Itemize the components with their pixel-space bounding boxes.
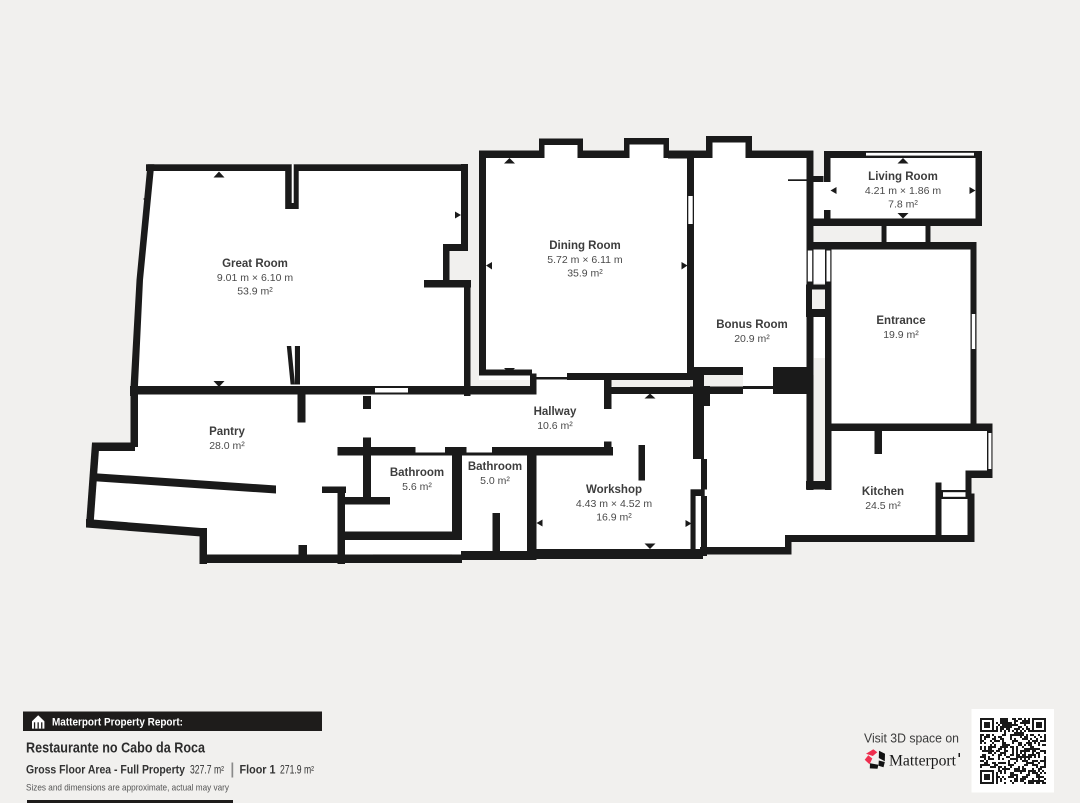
svg-text:35.9 m²: 35.9 m² <box>567 268 603 280</box>
svg-text:Workshop: Workshop <box>586 484 642 496</box>
svg-text:Bonus Room: Bonus Room <box>716 319 788 331</box>
svg-text:53.9 m²: 53.9 m² <box>237 286 273 298</box>
svg-text:10.6 m²: 10.6 m² <box>537 420 573 432</box>
svg-text:Hallway: Hallway <box>534 406 577 418</box>
svg-text:19.9 m²: 19.9 m² <box>883 329 919 341</box>
svg-text:Sizes and dimensions are appro: Sizes and dimensions are approximate, ac… <box>26 783 229 794</box>
svg-text:Floor 1: Floor 1 <box>240 765 277 777</box>
svg-text:9.01 m × 6.10 m: 9.01 m × 6.10 m <box>217 272 293 284</box>
svg-text:5.72 m × 6.11 m: 5.72 m × 6.11 m <box>547 254 623 266</box>
svg-text:Kitchen: Kitchen <box>862 486 904 498</box>
svg-text:Visit 3D space on: Visit 3D space on <box>864 731 959 746</box>
svg-text:4.43 m × 4.52 m: 4.43 m × 4.52 m <box>576 498 652 510</box>
svg-text:5.6 m²: 5.6 m² <box>402 481 432 493</box>
svg-text:20.9 m²: 20.9 m² <box>734 333 770 345</box>
svg-text:Bathroom: Bathroom <box>468 461 522 473</box>
svg-text:Matterport: Matterport <box>889 753 957 770</box>
svg-text:28.0 m²: 28.0 m² <box>209 440 245 452</box>
svg-text:24.5 m²: 24.5 m² <box>865 500 901 512</box>
svg-text:Matterport Property Report:: Matterport Property Report: <box>52 717 183 729</box>
svg-text:7.8 m²: 7.8 m² <box>888 199 918 211</box>
svg-text:4.21 m × 1.86 m: 4.21 m × 1.86 m <box>865 185 941 197</box>
svg-text:327.7 m²: 327.7 m² <box>190 765 224 777</box>
svg-text:Restaurante no Cabo da Roca: Restaurante no Cabo da Roca <box>26 741 206 757</box>
svg-text:Dining Room: Dining Room <box>549 240 621 252</box>
svg-text:271.9 m²: 271.9 m² <box>280 765 314 777</box>
svg-text:Bathroom: Bathroom <box>390 467 444 479</box>
svg-text:Entrance: Entrance <box>876 315 925 327</box>
svg-text:Great Room: Great Room <box>222 258 288 270</box>
svg-text:Pantry: Pantry <box>209 426 245 438</box>
svg-text:Gross Floor Area - Full Proper: Gross Floor Area - Full Property <box>26 765 186 777</box>
svg-text:Living Room: Living Room <box>868 171 938 183</box>
svg-text:5.0 m²: 5.0 m² <box>480 475 510 487</box>
svg-text:16.9 m²: 16.9 m² <box>596 512 632 524</box>
